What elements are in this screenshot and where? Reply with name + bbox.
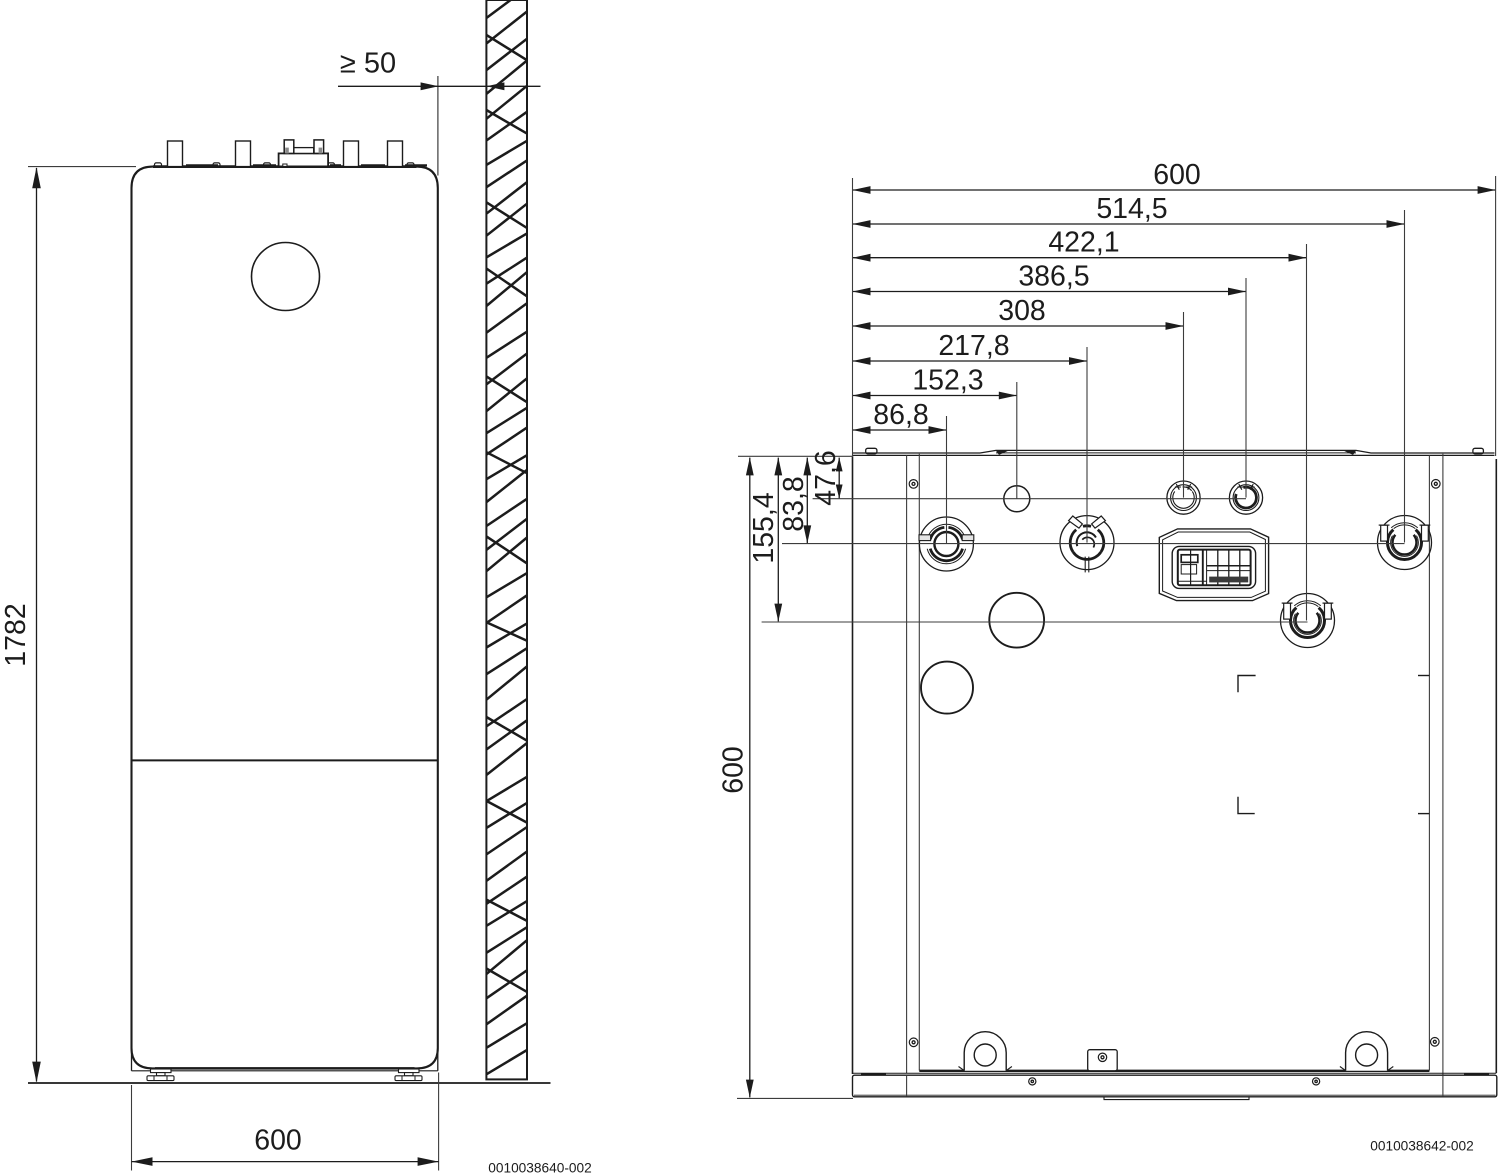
svg-text:0010038642-002: 0010038642-002 — [1370, 1139, 1474, 1154]
svg-text:1782: 1782 — [0, 603, 32, 666]
svg-text:0010038640-002: 0010038640-002 — [488, 1161, 592, 1176]
svg-text:600: 600 — [1153, 159, 1201, 191]
svg-text:217,8: 217,8 — [938, 330, 1009, 362]
svg-text:155,4: 155,4 — [748, 492, 780, 563]
svg-text:600: 600 — [254, 1125, 302, 1157]
svg-text:83,8: 83,8 — [778, 476, 810, 531]
svg-text:47,6: 47,6 — [810, 450, 842, 505]
svg-text:386,5: 386,5 — [1018, 260, 1089, 292]
svg-text:422,1: 422,1 — [1048, 227, 1119, 259]
svg-text:86,8: 86,8 — [873, 399, 928, 431]
svg-text:600: 600 — [717, 746, 749, 794]
svg-text:152,3: 152,3 — [912, 364, 983, 396]
svg-text:514,5: 514,5 — [1096, 193, 1167, 225]
svg-text:308: 308 — [998, 295, 1046, 327]
svg-text:≥ 50: ≥ 50 — [340, 48, 396, 80]
